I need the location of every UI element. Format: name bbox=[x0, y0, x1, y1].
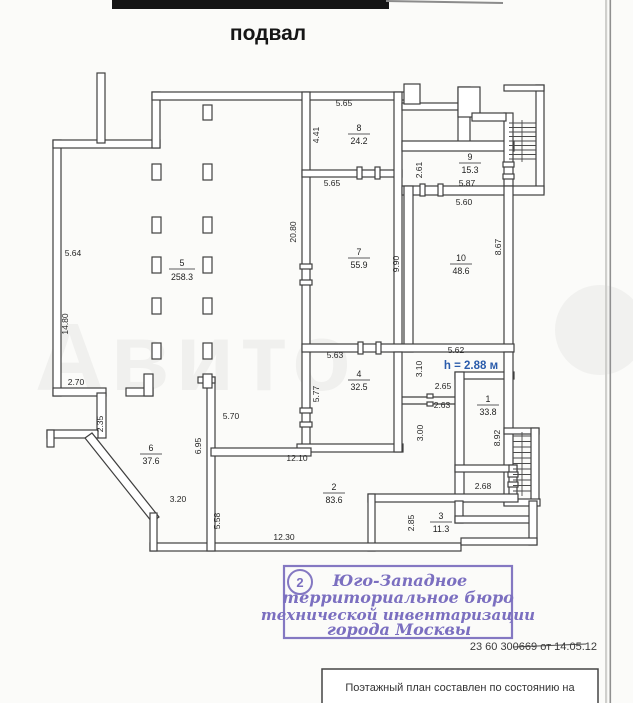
room-area: 11.3 bbox=[433, 524, 450, 534]
scan-gray-line bbox=[386, 1, 503, 3]
dim-label: 2.68 bbox=[475, 481, 492, 491]
dim-label: 2.61 bbox=[414, 161, 424, 178]
stamp-line: территориальное бюро bbox=[282, 588, 514, 607]
dim-label: 8.67 bbox=[493, 238, 503, 255]
room-number: 2 bbox=[332, 482, 337, 492]
dim-label: 5.64 bbox=[65, 248, 82, 258]
dim-label: 6.95 bbox=[193, 437, 203, 454]
dim-label: 5.63 bbox=[327, 350, 344, 360]
room-area: 48.6 bbox=[452, 266, 469, 276]
room-number: 5 bbox=[180, 258, 185, 268]
bottom-caption-box: Поэтажный план составлен по состоянию на bbox=[322, 669, 598, 703]
dim-label: 5.65 bbox=[336, 98, 353, 108]
dim-label: 2.65 bbox=[435, 381, 452, 391]
room-area: 83.6 bbox=[325, 495, 342, 505]
room-area: 33.8 bbox=[479, 407, 496, 417]
room-area: 32.5 bbox=[350, 382, 367, 392]
room-number: 9 bbox=[468, 152, 473, 162]
stamp-line: города Москвы bbox=[327, 620, 471, 639]
room-area: 37.6 bbox=[142, 456, 159, 466]
room-number: 10 bbox=[456, 253, 466, 263]
dim-label: 2.70 bbox=[68, 377, 85, 387]
height-note: h = 2.88 м bbox=[444, 360, 498, 372]
floor-plan-svg: Авито подвал bbox=[0, 0, 633, 703]
caption-text: Поэтажный план составлен по состоянию на bbox=[345, 682, 575, 694]
dim-label: 4.41 bbox=[311, 126, 321, 143]
dim-label: 5.65 bbox=[324, 178, 341, 188]
dim-label: 5.60 bbox=[456, 197, 473, 207]
dim-label: 2.85 bbox=[406, 514, 416, 531]
dim-label: 8.92 bbox=[492, 429, 502, 446]
room-area: 15.3 bbox=[461, 165, 478, 175]
dim-label: 5.87 bbox=[459, 178, 476, 188]
reference-number: 23 60 300669 от 14.05.12 bbox=[470, 641, 597, 653]
room-number: 1 bbox=[486, 394, 491, 404]
room-area: 55.9 bbox=[350, 260, 367, 270]
dim-label: 3.20 bbox=[170, 494, 187, 504]
room-number: 8 bbox=[357, 123, 362, 133]
room-area: 24.2 bbox=[350, 136, 367, 146]
page-title: подвал bbox=[230, 22, 306, 45]
bti-stamp: 2 Юго-Западное территориальное бюро техн… bbox=[261, 566, 535, 639]
dim-label: 2.63 bbox=[434, 400, 451, 410]
dim-label: 9.90 bbox=[391, 255, 401, 272]
dim-label: 3.10 bbox=[414, 360, 424, 377]
scan-black-bar bbox=[112, 0, 389, 9]
room-number: 6 bbox=[149, 443, 154, 453]
scanned-floor-plan-page: Авито подвал bbox=[0, 0, 633, 703]
dim-label: 5.70 bbox=[223, 411, 240, 421]
dim-label: 5.77 bbox=[311, 385, 321, 402]
page-edge-light bbox=[605, 0, 607, 703]
dim-label: 5.62 bbox=[448, 345, 465, 355]
dim-label: 20.80 bbox=[288, 221, 298, 243]
dim-label: 14.80 bbox=[60, 313, 70, 335]
dim-label: 3.00 bbox=[415, 424, 425, 441]
room-number: 3 bbox=[439, 511, 444, 521]
dim-label: 12.10 bbox=[286, 453, 308, 463]
room-number: 7 bbox=[357, 247, 362, 257]
room-number: 4 bbox=[357, 369, 362, 379]
room-area: 258.3 bbox=[171, 272, 193, 282]
dim-label: 12.30 bbox=[273, 532, 295, 542]
dim-label: 5.58 bbox=[212, 512, 222, 529]
page-edge-dark bbox=[610, 0, 612, 703]
watermark-blob bbox=[555, 285, 633, 375]
dim-label: 2.35 bbox=[95, 415, 105, 432]
